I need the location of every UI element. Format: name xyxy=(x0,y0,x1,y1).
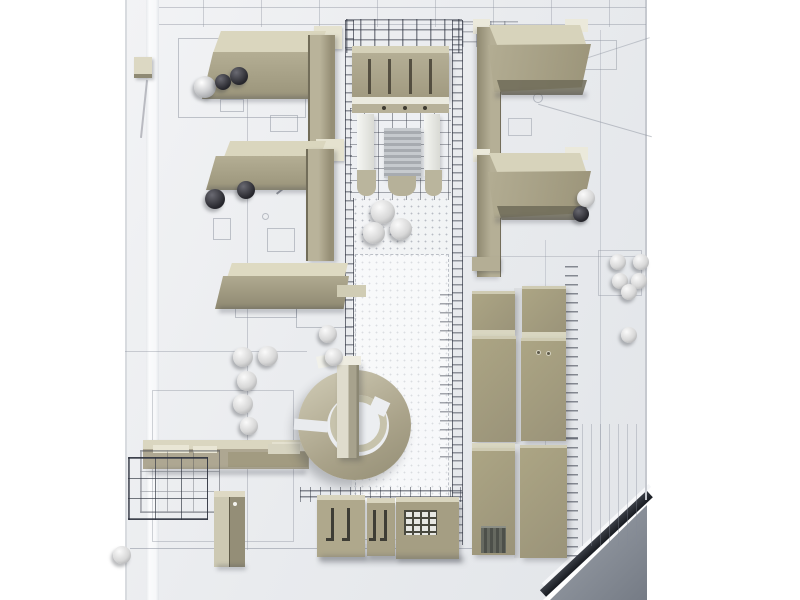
hall-white-band xyxy=(352,97,449,104)
wireframe-cubes xyxy=(140,450,220,513)
south-slot-foot xyxy=(342,538,350,541)
east-block1-roof xyxy=(489,25,587,47)
hall-pillar xyxy=(357,114,374,176)
ring-connector xyxy=(268,444,300,454)
slab-top-bit xyxy=(472,257,500,271)
hall-slot xyxy=(409,59,412,94)
hall-louver-block xyxy=(384,128,421,178)
west-block3-shadow xyxy=(219,307,345,313)
white-model-sphere xyxy=(240,417,258,435)
hall-slab-cap xyxy=(352,46,449,53)
south-block1 xyxy=(317,498,365,557)
white-model-sphere xyxy=(237,371,257,391)
dark-model-sphere xyxy=(215,74,231,90)
white-model-sphere xyxy=(113,546,131,564)
plan-rect xyxy=(213,218,231,240)
west-block3-tab xyxy=(337,285,366,297)
tower-slab-light xyxy=(214,497,229,567)
linear-bar-segment xyxy=(228,452,308,467)
white-model-sphere xyxy=(319,325,337,343)
plan-circle xyxy=(262,213,269,220)
slab-bar xyxy=(521,338,566,441)
south-slot xyxy=(331,508,334,541)
tower-slab-dark xyxy=(229,497,245,567)
white-model-sphere xyxy=(610,254,626,270)
tick-ladder xyxy=(440,294,452,459)
west-block1-shadow xyxy=(204,96,324,102)
plan-line-horizontal xyxy=(125,351,307,352)
slab-rooflight-dot xyxy=(536,350,541,355)
dark-model-sphere xyxy=(573,206,589,222)
south-blocks-shadow xyxy=(320,556,464,563)
south-slot-foot xyxy=(380,538,387,541)
board-left-edge xyxy=(125,0,127,600)
hall-slot xyxy=(368,59,371,94)
tick-ladder xyxy=(565,266,578,446)
plan-rect xyxy=(508,118,532,136)
hall-foot xyxy=(357,170,376,196)
pergola-rail-right xyxy=(452,20,463,545)
plan-rect xyxy=(267,228,295,252)
white-model-sphere xyxy=(371,200,395,224)
tower-slab-dot xyxy=(233,502,237,506)
road-cube xyxy=(134,57,152,78)
slab-bar xyxy=(472,291,515,334)
white-model-sphere xyxy=(621,327,637,343)
south-slot xyxy=(384,510,387,541)
slab-dark-box xyxy=(481,526,506,553)
south-slot-foot xyxy=(369,538,376,541)
white-model-sphere xyxy=(363,222,385,244)
south-block3-window-grid xyxy=(404,510,437,535)
hall-slot xyxy=(388,59,391,94)
dotted-columns xyxy=(582,424,642,546)
hall-dot xyxy=(382,106,386,110)
architectural-model-photo xyxy=(0,0,800,600)
west-block3-front xyxy=(215,276,349,309)
west-block1-wing xyxy=(308,35,335,151)
silver-model-sphere xyxy=(194,76,216,98)
hall-dot-band xyxy=(352,104,449,113)
white-model-sphere xyxy=(258,346,278,366)
photo-canvas xyxy=(0,0,800,600)
white-model-sphere xyxy=(390,218,412,240)
plan-rect xyxy=(270,115,298,132)
south-block1-cap xyxy=(317,495,365,500)
dark-model-sphere xyxy=(205,189,225,209)
white-model-sphere xyxy=(233,347,253,367)
rotunda-tower xyxy=(337,361,359,458)
south-block2-cap xyxy=(367,498,395,503)
hall-pillar xyxy=(424,114,440,176)
hall-dot xyxy=(403,106,407,110)
dark-model-sphere xyxy=(230,67,248,85)
dark-model-sphere xyxy=(237,181,255,199)
tower-slab-shadow xyxy=(217,565,246,570)
hall-foot xyxy=(388,176,416,196)
south-block3-cap xyxy=(396,497,459,502)
south-block2 xyxy=(367,501,395,556)
south-slot xyxy=(347,508,350,541)
plan-line-vertical xyxy=(600,30,601,450)
south-slot xyxy=(373,510,376,541)
board-right-edge xyxy=(645,0,647,500)
south-slot-foot xyxy=(326,538,334,541)
white-model-sphere xyxy=(233,394,253,414)
hall-slot xyxy=(429,59,432,94)
hall-foot xyxy=(425,170,442,196)
hall-dot xyxy=(423,106,427,110)
east-block2-roof xyxy=(489,153,587,174)
slab-rooflight-dot xyxy=(546,351,551,356)
west-block3-roof xyxy=(227,263,348,278)
white-model-sphere xyxy=(577,189,595,207)
west-block2-wing xyxy=(306,149,334,261)
slab-bar xyxy=(522,286,566,336)
white-model-sphere xyxy=(621,284,637,300)
hall-slab-front xyxy=(352,51,449,98)
slab-bar xyxy=(520,445,567,558)
white-model-sphere xyxy=(325,348,343,366)
white-model-sphere xyxy=(633,254,649,270)
east-block1-shadow xyxy=(495,92,587,98)
slab-bar xyxy=(472,336,516,442)
